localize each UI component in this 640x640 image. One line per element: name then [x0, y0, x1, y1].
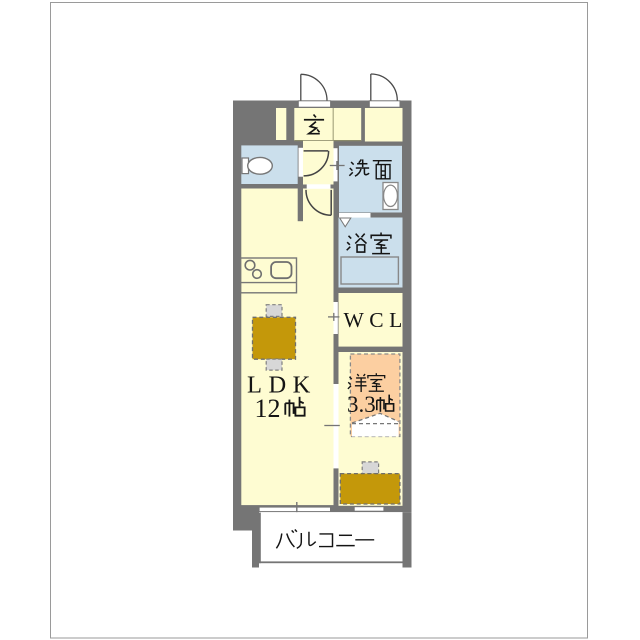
- svg-text:12: 12: [255, 394, 281, 423]
- svg-text:3.3: 3.3: [347, 392, 376, 417]
- svg-text:WCL: WCL: [344, 308, 408, 332]
